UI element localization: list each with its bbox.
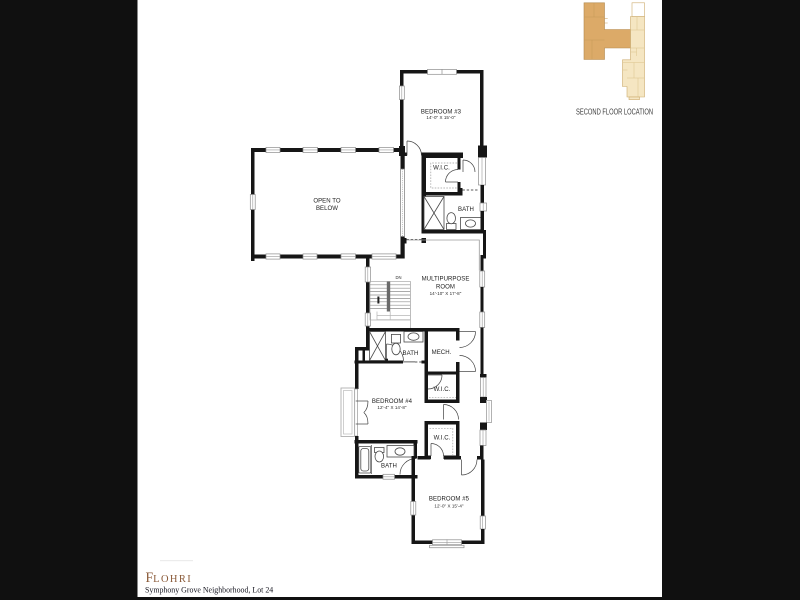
- svg-text:W.I.C.: W.I.C.: [434, 436, 451, 442]
- svg-text:MECH.: MECH.: [432, 350, 452, 356]
- svg-text:BELOW: BELOW: [316, 206, 338, 212]
- svg-text:OPEN TO: OPEN TO: [313, 199, 341, 205]
- svg-text:14'-0" X 15'-0": 14'-0" X 15'-0": [426, 115, 456, 120]
- svg-text:ROOM: ROOM: [436, 285, 455, 291]
- svg-text:SECOND FLOOR LOCATION: SECOND FLOOR LOCATION: [576, 108, 653, 117]
- svg-text:Symphony Grove Neighborhood, L: Symphony Grove Neighborhood, Lot 24: [145, 586, 273, 595]
- svg-text:FLOHRI: FLOHRI: [146, 570, 193, 586]
- svg-text:DN: DN: [395, 275, 401, 280]
- svg-text:W.I.C.: W.I.C.: [433, 166, 450, 172]
- svg-text:BEDROOM #5: BEDROOM #5: [429, 497, 470, 503]
- svg-text:BEDROOM #4: BEDROOM #4: [372, 399, 413, 405]
- svg-text:BATH: BATH: [381, 464, 397, 470]
- svg-text:W.I.C.: W.I.C.: [434, 387, 451, 393]
- svg-text:MULTIPURPOSE: MULTIPURPOSE: [422, 277, 470, 283]
- svg-text:12'-4" X 14'-8": 12'-4" X 14'-8": [377, 405, 407, 410]
- svg-text:BATH: BATH: [458, 207, 474, 213]
- svg-text:BATH: BATH: [403, 351, 419, 357]
- svg-text:12'-0" X 15'-4": 12'-0" X 15'-4": [434, 504, 464, 509]
- svg-text:14'-10" X 17'-8": 14'-10" X 17'-8": [430, 291, 462, 296]
